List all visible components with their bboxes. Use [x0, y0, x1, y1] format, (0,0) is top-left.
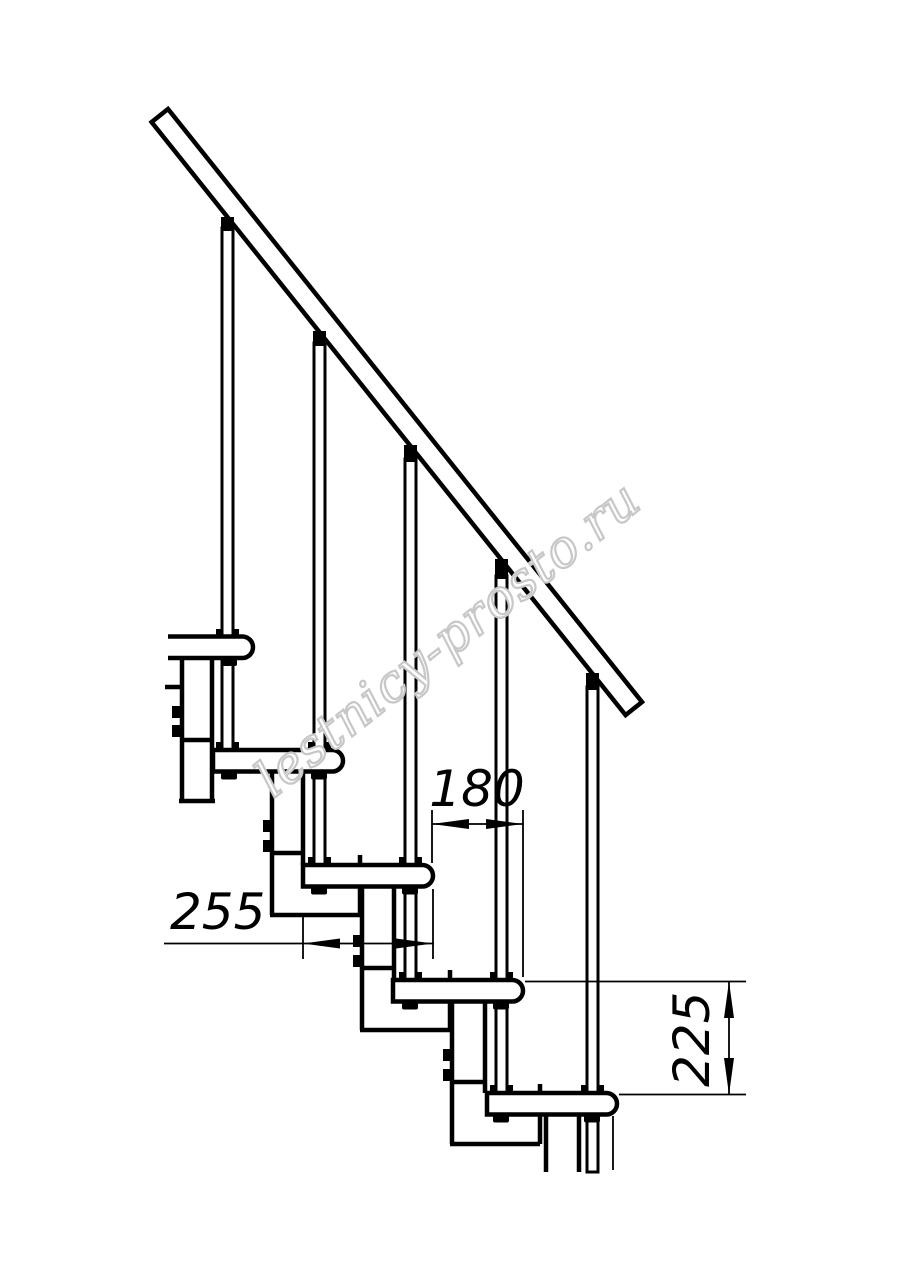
clamp-bolt: [263, 840, 273, 852]
clamp-bolt: [353, 955, 363, 967]
flange: [216, 629, 223, 637]
staircase-side-view-drawing: 255 180 225 lestnicy-prosto.ru: [0, 0, 914, 1280]
nut: [493, 1002, 509, 1010]
tread-4: [393, 980, 523, 1002]
flange: [597, 1085, 604, 1093]
baluster-1: [222, 228, 233, 750]
flange: [490, 1085, 497, 1093]
tread-5: [487, 1093, 617, 1115]
arrowhead-left: [303, 939, 340, 949]
flange: [399, 857, 406, 865]
flange: [506, 972, 513, 980]
nut: [311, 887, 327, 895]
arrowhead-left: [432, 819, 469, 829]
flange: [581, 1085, 588, 1093]
rail-wedge: [404, 445, 417, 462]
flange: [506, 1085, 513, 1093]
support-module-4: [443, 1001, 540, 1144]
arrowhead-down: [724, 1058, 734, 1095]
flange: [490, 972, 497, 980]
dimension-step-rise: 225: [525, 982, 746, 1095]
flange: [415, 857, 422, 865]
clamp-bolt: [443, 1069, 453, 1081]
flange: [216, 742, 223, 750]
clamp-bolt: [172, 725, 182, 737]
nut: [584, 1115, 600, 1123]
flange: [399, 972, 406, 980]
arrowhead-up: [724, 982, 734, 1019]
nut: [402, 887, 418, 895]
rail-wedge: [313, 331, 326, 346]
flange: [324, 857, 331, 865]
nut: [402, 1002, 418, 1010]
dim-label-180: 180: [429, 760, 524, 818]
rail-wedge: [221, 217, 234, 231]
clamp-bolt: [172, 706, 182, 718]
flange: [415, 972, 422, 980]
flange: [232, 629, 239, 637]
support-module-5: [546, 1114, 613, 1172]
support-module-3: [353, 886, 450, 1030]
baluster-3: [405, 459, 416, 980]
dim-label-255: 255: [170, 883, 265, 941]
tread-1: [168, 637, 253, 659]
support-module-1: [165, 658, 215, 801]
nut: [221, 772, 237, 780]
clamp-bolt: [443, 1049, 453, 1061]
nut: [221, 658, 237, 666]
flange: [232, 742, 239, 750]
stair-drawing-page: 255 180 225 lestnicy-prosto.ru: [0, 0, 914, 1280]
dimension-step-run: 180: [429, 760, 524, 977]
nut: [493, 1115, 509, 1123]
dim-label-225: 225: [663, 992, 721, 1087]
clamp-bolt: [353, 935, 363, 947]
tread-3: [303, 865, 433, 887]
baluster-4: [496, 576, 507, 1093]
rail-wedge: [586, 673, 599, 690]
baluster-2: [314, 343, 325, 865]
flange: [308, 857, 315, 865]
clamp-bolt: [263, 820, 273, 832]
